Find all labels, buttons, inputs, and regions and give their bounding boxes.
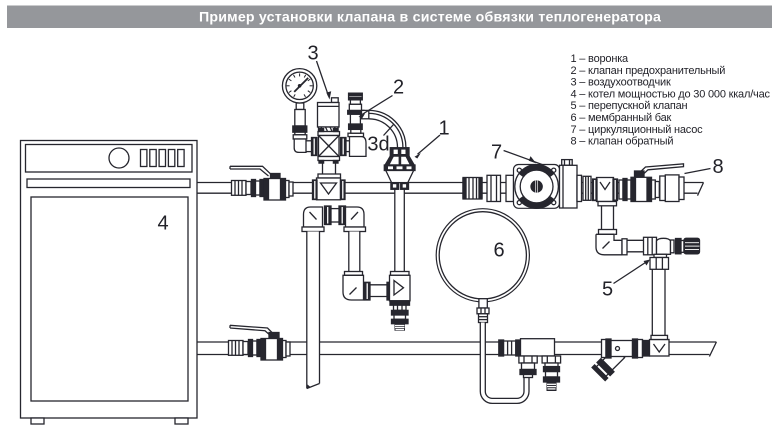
svg-text:7 – циркуляционный насос: 7 – циркуляционный насос xyxy=(571,124,704,136)
svg-text:5: 5 xyxy=(602,279,613,301)
svg-text:7: 7 xyxy=(491,142,502,164)
svg-text:3d: 3d xyxy=(367,134,389,156)
svg-text:1 – воронка: 1 – воронка xyxy=(571,53,630,65)
svg-text:2 – клапан предохранительный: 2 – клапан предохранительный xyxy=(571,65,726,77)
svg-text:Пример установки клапана в си: Пример установки клапана в системе обвяз… xyxy=(199,10,661,26)
svg-text:8: 8 xyxy=(712,156,723,178)
svg-text:2: 2 xyxy=(393,77,404,99)
svg-text:6 – мембранный бак: 6 – мембранный бак xyxy=(571,112,672,124)
svg-text:8 – клапан обратный: 8 – клапан обратный xyxy=(571,136,674,148)
svg-text:6: 6 xyxy=(493,240,504,262)
svg-text:4: 4 xyxy=(157,213,168,235)
svg-text:4 – котел мощностью до 30 000: 4 – котел мощностью до 30 000 ккал/час xyxy=(571,88,771,100)
svg-text:3 – воздухоотводчик: 3 – воздухоотводчик xyxy=(571,77,671,89)
svg-text:1: 1 xyxy=(438,118,449,140)
svg-text:5 – перепускной клапан: 5 – перепускной клапан xyxy=(571,100,688,112)
